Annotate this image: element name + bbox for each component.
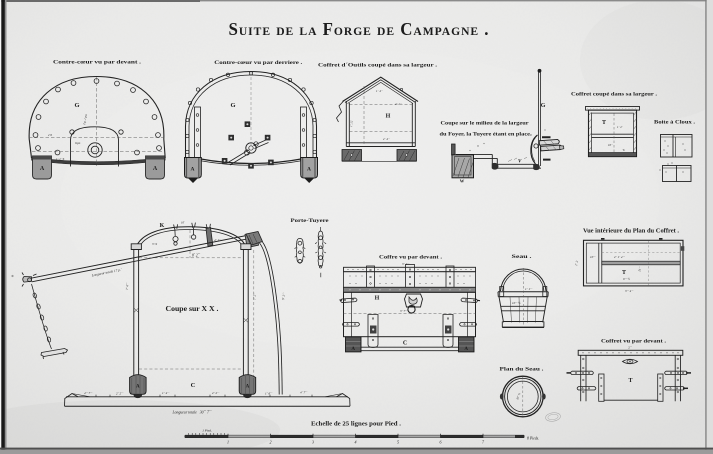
svg-text:1´ 1´´: 1´ 1´´: [525, 287, 533, 291]
svg-text:Coffret vu par devant .: Coffret vu par devant .: [601, 339, 667, 345]
svg-text:T: T: [628, 378, 632, 384]
svg-text:1´.12: 1´.12: [349, 120, 354, 127]
svg-text:2: 2: [270, 440, 272, 445]
svg-text:8 Pieds.: 8 Pieds.: [527, 437, 539, 441]
svg-text:Coupe sur X X .: Coupe sur X X .: [166, 304, 219, 313]
svg-text:du Foyer, la Tuyere étant en p: du Foyer, la Tuyere étant en place.: [440, 132, 533, 138]
svg-text:C: C: [191, 382, 196, 389]
svg-text:2´ 1´ 4´´: 2´ 1´ 4´´: [614, 255, 626, 259]
svg-text:4´ 7´´: 4´ 7´´: [300, 391, 308, 395]
svg-text:1´ 4´´: 1´ 4´´: [376, 89, 384, 93]
svg-text:Coupe sur le milieu de la larg: Coupe sur le milieu de la largeur: [441, 121, 530, 127]
svg-text:1 Pied.: 1 Pied.: [202, 429, 212, 433]
svg-text:3´ 7´´: 3´ 7´´: [400, 309, 408, 313]
svg-text:1: 1: [227, 440, 229, 445]
svg-text:3: 3: [312, 440, 314, 445]
svg-text:Coffret coupé dans sa largeur: Coffret coupé dans sa largeur .: [571, 92, 658, 98]
svg-text:A: A: [153, 166, 158, 172]
svg-text:1´ 4´´: 1´ 4´´: [162, 391, 170, 395]
svg-text:A: A: [351, 347, 355, 352]
svg-text:6: 6: [440, 440, 442, 445]
svg-text:Seau .: Seau .: [512, 254, 533, 260]
svg-text:Echelle de 25 lignes pour Pied: Echelle de 25 lignes pour Pied .: [311, 422, 402, 428]
svg-text:2´ 2´´: 2´ 2´´: [212, 391, 220, 395]
svg-text:10´´ ½: 10´´ ½: [512, 301, 521, 305]
svg-text:1´.2´´6: 1´.2´´6: [56, 157, 65, 161]
svg-text:A: A: [246, 385, 250, 390]
svg-text:A: A: [40, 166, 45, 172]
svg-text:Porte-Tuyere: Porte-Tuyere: [291, 218, 330, 224]
svg-text:8´ 2´´: 8´ 2´´: [192, 254, 201, 258]
svg-text:G: G: [74, 102, 79, 109]
svg-text:T: T: [622, 270, 626, 276]
svg-text:3´´ 4´´: 3´´ 4´´: [625, 289, 634, 293]
svg-text:7´ 2´´: 7´ 2´´: [253, 292, 257, 300]
svg-text:G: G: [230, 102, 235, 109]
svg-text:2´6: 2´6: [48, 133, 52, 137]
svg-text:Plan du Seau .: Plan du Seau .: [500, 367, 545, 373]
svg-text:9´´ ½: 9´´ ½: [623, 277, 631, 281]
svg-text:Suite de la Forge de Campagne: Suite de la Forge de Campagne .: [229, 19, 490, 39]
svg-text:2´ 4´´: 2´ 4´´: [383, 137, 391, 141]
svg-text:3´ 4´´: 3´ 4´´: [402, 262, 410, 266]
svg-text:C: C: [403, 341, 407, 347]
svg-text:Contre-cœur vu par derriere .: Contre-cœur vu par derriere .: [214, 60, 303, 66]
svg-text:A: A: [464, 347, 468, 352]
svg-text:1´ 6´´: 1´ 6´´: [265, 392, 273, 396]
svg-text:W: W: [460, 179, 465, 184]
svg-text:2´´: 2´´: [628, 346, 632, 350]
svg-text:2´ 2´´: 2´ 2´´: [116, 392, 124, 396]
svg-text:Coffre vu par devant .: Coffre vu par devant .: [379, 255, 443, 261]
svg-text:4: 4: [355, 440, 357, 445]
svg-text:1´ 2´: 1´ 2´: [617, 125, 624, 129]
svg-text:A: A: [191, 167, 195, 173]
svg-text:H: H: [375, 296, 380, 302]
svg-text:9.po: 9.po: [75, 141, 81, 145]
svg-text:7´ 6´´: 7´ 6´´: [125, 282, 129, 290]
svg-text:4´´ 7´´: 4´´ 7´´: [84, 391, 93, 395]
svg-text:Contre-cœur vu par devant .: Contre-cœur vu par devant .: [53, 60, 142, 66]
svg-text:2´ 1´´: 2´ 1´´: [395, 102, 403, 106]
svg-text:K: K: [160, 223, 165, 229]
svg-text:H: H: [386, 114, 391, 120]
svg-text:3´.9: 3´.9: [152, 242, 157, 246]
svg-text:5: 5: [397, 440, 399, 445]
svg-text:A: A: [136, 385, 140, 390]
svg-text:G: G: [541, 103, 546, 109]
svg-text:10´´: 10´´: [590, 255, 596, 259]
svg-text:A: A: [307, 167, 311, 173]
svg-text:Longueur totale 30´´ 7´´: Longueur totale 30´´ 7´´: [172, 411, 213, 415]
svg-text:Vue intérieure du Plan du Coff: Vue intérieure du Plan du Coffret .: [583, 229, 680, 235]
svg-text:Boite à Cloux .: Boite à Cloux .: [654, 120, 696, 126]
svg-text:Coffret d´Outils coupé dans sa: Coffret d´Outils coupé dans sa largeur .: [318, 63, 438, 69]
svg-text:T: T: [602, 120, 606, 126]
svg-text:4´ 1´´: 4´ 1´´: [214, 238, 222, 242]
